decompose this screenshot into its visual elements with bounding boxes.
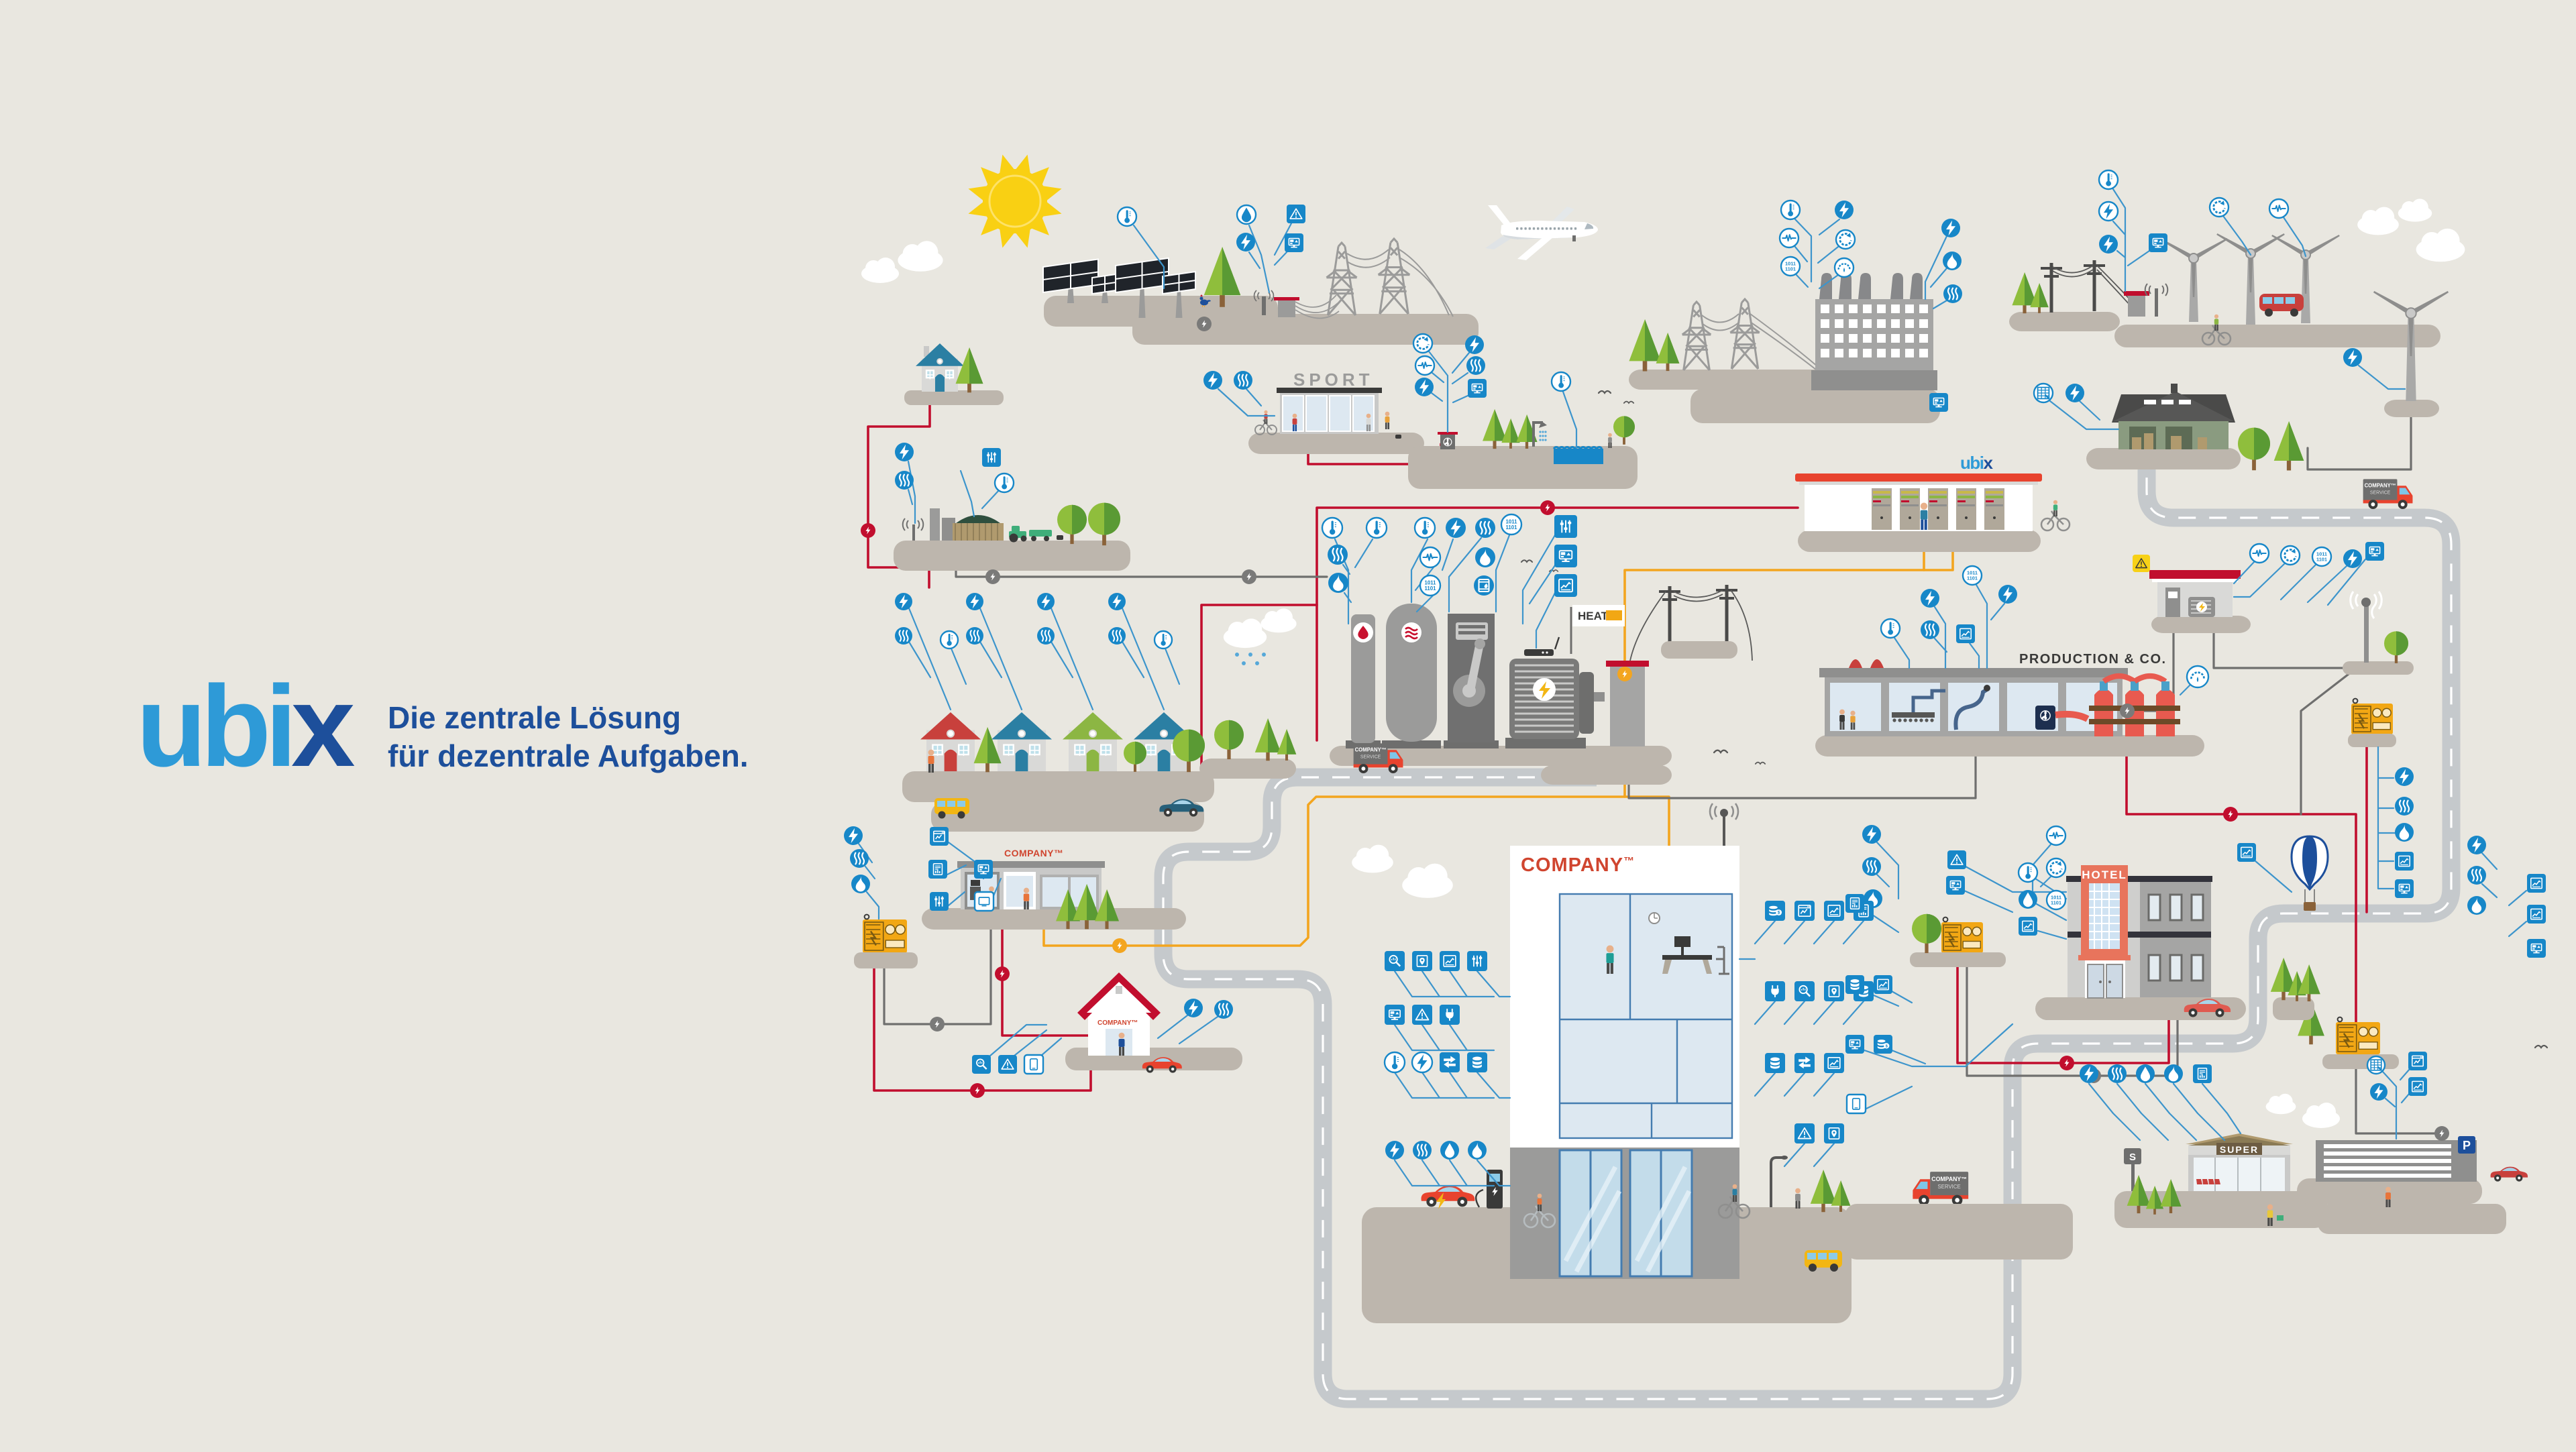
svg-text:PRODUCTION & CO.: PRODUCTION & CO. [2019, 652, 2167, 667]
svg-text:ubix: ubix [1960, 453, 1994, 473]
svg-text:COMPANY™: COMPANY™ [2365, 483, 2396, 489]
svg-text:COMPANY™: COMPANY™ [1355, 747, 1387, 753]
svg-text:SUPER: SUPER [2220, 1144, 2259, 1155]
svg-text:COMPANY™: COMPANY™ [1097, 1019, 1138, 1027]
svg-text:P: P [2463, 1139, 2471, 1152]
svg-text:SERVICE: SERVICE [1938, 1184, 1961, 1190]
svg-text:COMPANY™: COMPANY™ [1004, 848, 1064, 858]
svg-text:Die zentrale Lösung: Die zentrale Lösung [388, 700, 681, 735]
svg-text:COMPANY™: COMPANY™ [1521, 854, 1635, 876]
svg-text:für dezentrale Aufgaben.: für dezentrale Aufgaben. [388, 738, 749, 773]
svg-text:ubix: ubix [136, 662, 355, 791]
svg-text:SERVICE: SERVICE [1360, 755, 1381, 760]
svg-text:SERVICE: SERVICE [2370, 491, 2391, 496]
svg-text:SPORT: SPORT [1293, 370, 1374, 390]
svg-text:COMPANY™: COMPANY™ [1931, 1176, 1967, 1182]
svg-text:S: S [2129, 1152, 2136, 1163]
svg-text:HOTEL: HOTEL [2082, 869, 2127, 881]
svg-text:HEAT: HEAT [1578, 610, 1609, 622]
